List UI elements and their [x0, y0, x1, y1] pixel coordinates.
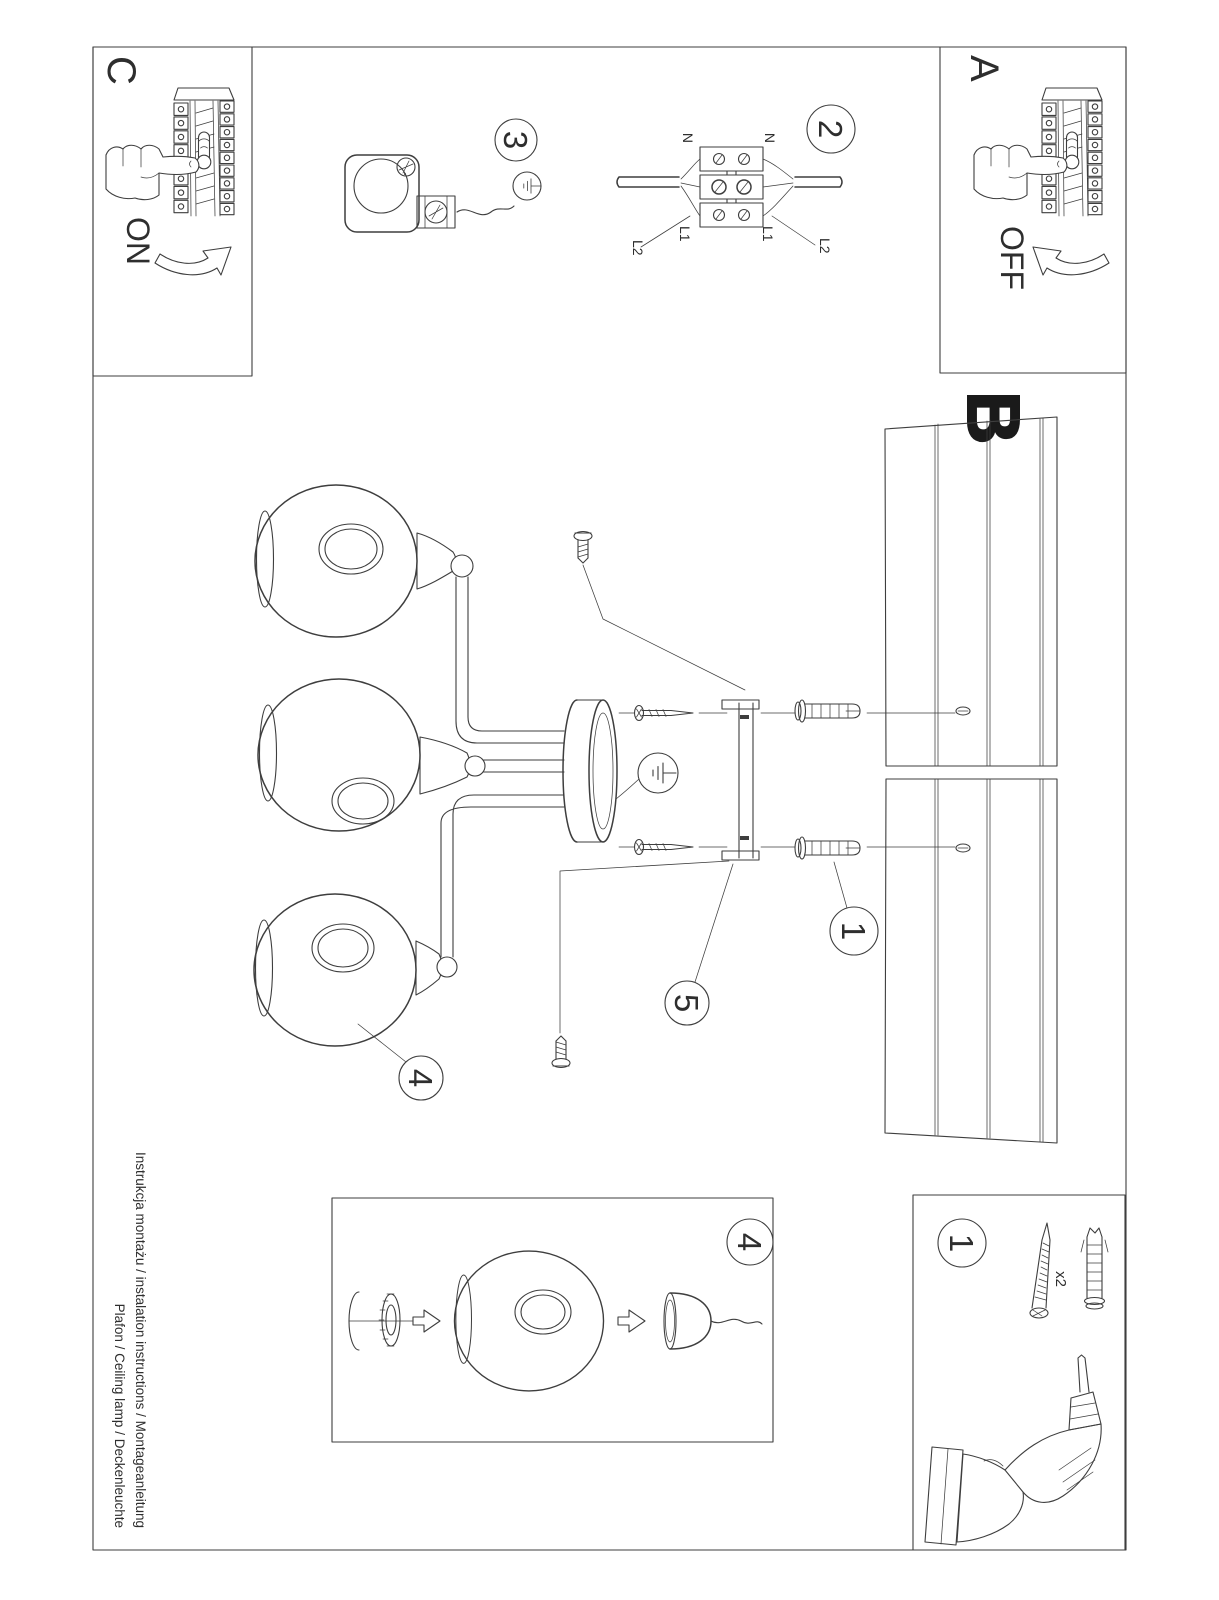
wire-label-neutral: N: [680, 133, 696, 143]
glass-shade: [255, 485, 417, 637]
off-label: OFF: [994, 226, 1030, 290]
detail-box-4: 4: [332, 1198, 773, 1442]
pointing-hand-icon: [974, 145, 1067, 199]
on-label: ON: [120, 217, 156, 265]
shade-neck: [420, 737, 470, 794]
earth-ground-icon: [616, 753, 678, 799]
svg-text:1: 1: [943, 1234, 980, 1252]
screw-quantity-label: x2: [1052, 1271, 1069, 1287]
drill-hole: [956, 844, 970, 852]
canopy-screw: [574, 532, 592, 564]
svg-text:1: 1: [835, 922, 872, 940]
wire-label-line1: L1: [760, 226, 776, 242]
footer: Instrukcja montażu / instalation instruc…: [112, 1152, 148, 1528]
lamp-exploded-view: 1: [254, 485, 955, 1100]
detail-box-1: 1 x2: [913, 1195, 1125, 1550]
step-b-label: B: [952, 391, 1035, 444]
mounting-screw: [635, 840, 694, 855]
panel-c-power-on: C ON: [93, 47, 252, 376]
step3-holder-diagram: 3: [345, 119, 541, 232]
assemble-arrow-icon: [618, 1310, 645, 1332]
wire-label-neutral: N: [762, 133, 778, 143]
wall-plug: [795, 837, 860, 859]
ball-joint: [451, 555, 473, 577]
assemble-arrow-icon: [413, 1310, 440, 1332]
breaker-panel-icon: [1042, 88, 1102, 216]
step2-wiring-diagram: 2: [617, 105, 855, 256]
svg-text:4: 4: [731, 1233, 768, 1251]
kit-wall-plug: [1081, 1228, 1108, 1309]
kit-screw: [1030, 1223, 1050, 1318]
instruction-sheet-page: A OFF C ON 2: [0, 0, 1219, 1600]
svg-text:5: 5: [668, 994, 705, 1012]
wire-label-line2: L2: [630, 240, 646, 256]
callout-3-badge: 3: [495, 119, 537, 161]
ball-joint: [437, 957, 457, 977]
mounting-screw: [635, 706, 694, 721]
glass-shade: [454, 1251, 603, 1391]
mounting-bracket: [722, 700, 759, 860]
panel-a-power-off: A OFF: [940, 47, 1126, 373]
wire-label-line1: L1: [677, 226, 693, 242]
callout-5-badge: 5: [665, 981, 709, 1025]
callout-1-badge: 1: [830, 907, 878, 955]
step-a-label: A: [962, 55, 1006, 82]
glass-shade: [258, 679, 420, 831]
callout-4-badge: 4: [727, 1219, 773, 1265]
turn-off-arrow-icon: [1033, 247, 1109, 275]
step-c-label: C: [99, 56, 143, 85]
svg-text:4: 4: [402, 1069, 439, 1087]
drill-icon: [925, 1355, 1101, 1545]
earth-ground-icon: [513, 172, 541, 200]
footer-title-line1: Instrukcja montażu / instalation instruc…: [133, 1152, 148, 1528]
footer-title-line2: Plafon / Ceiling lamp / Deckenleuchte: [112, 1304, 127, 1528]
pointing-hand-icon: [106, 145, 199, 199]
breaker-panel-icon: [174, 88, 234, 216]
svg-text:3: 3: [497, 131, 534, 149]
ceiling-canopy: [563, 700, 617, 842]
wall-plug: [795, 700, 860, 722]
shade-neck: [417, 533, 456, 589]
instruction-sheet-drawing: A OFF C ON 2: [0, 0, 1219, 1600]
callout-4-badge: 4: [399, 1056, 443, 1100]
wire-label-line2: L2: [817, 238, 833, 254]
ball-joint: [465, 756, 485, 776]
callout-2-badge: 2: [807, 105, 855, 153]
socket-cup: [664, 1293, 762, 1349]
glass-shade: [254, 894, 416, 1046]
turn-on-arrow-icon: [155, 247, 231, 275]
callout-1-badge: 1: [938, 1219, 986, 1267]
drill-hole: [956, 707, 970, 715]
canopy-screw: [552, 1036, 570, 1068]
step-b-ceiling: B: [885, 391, 1057, 1143]
svg-text:2: 2: [812, 120, 849, 138]
